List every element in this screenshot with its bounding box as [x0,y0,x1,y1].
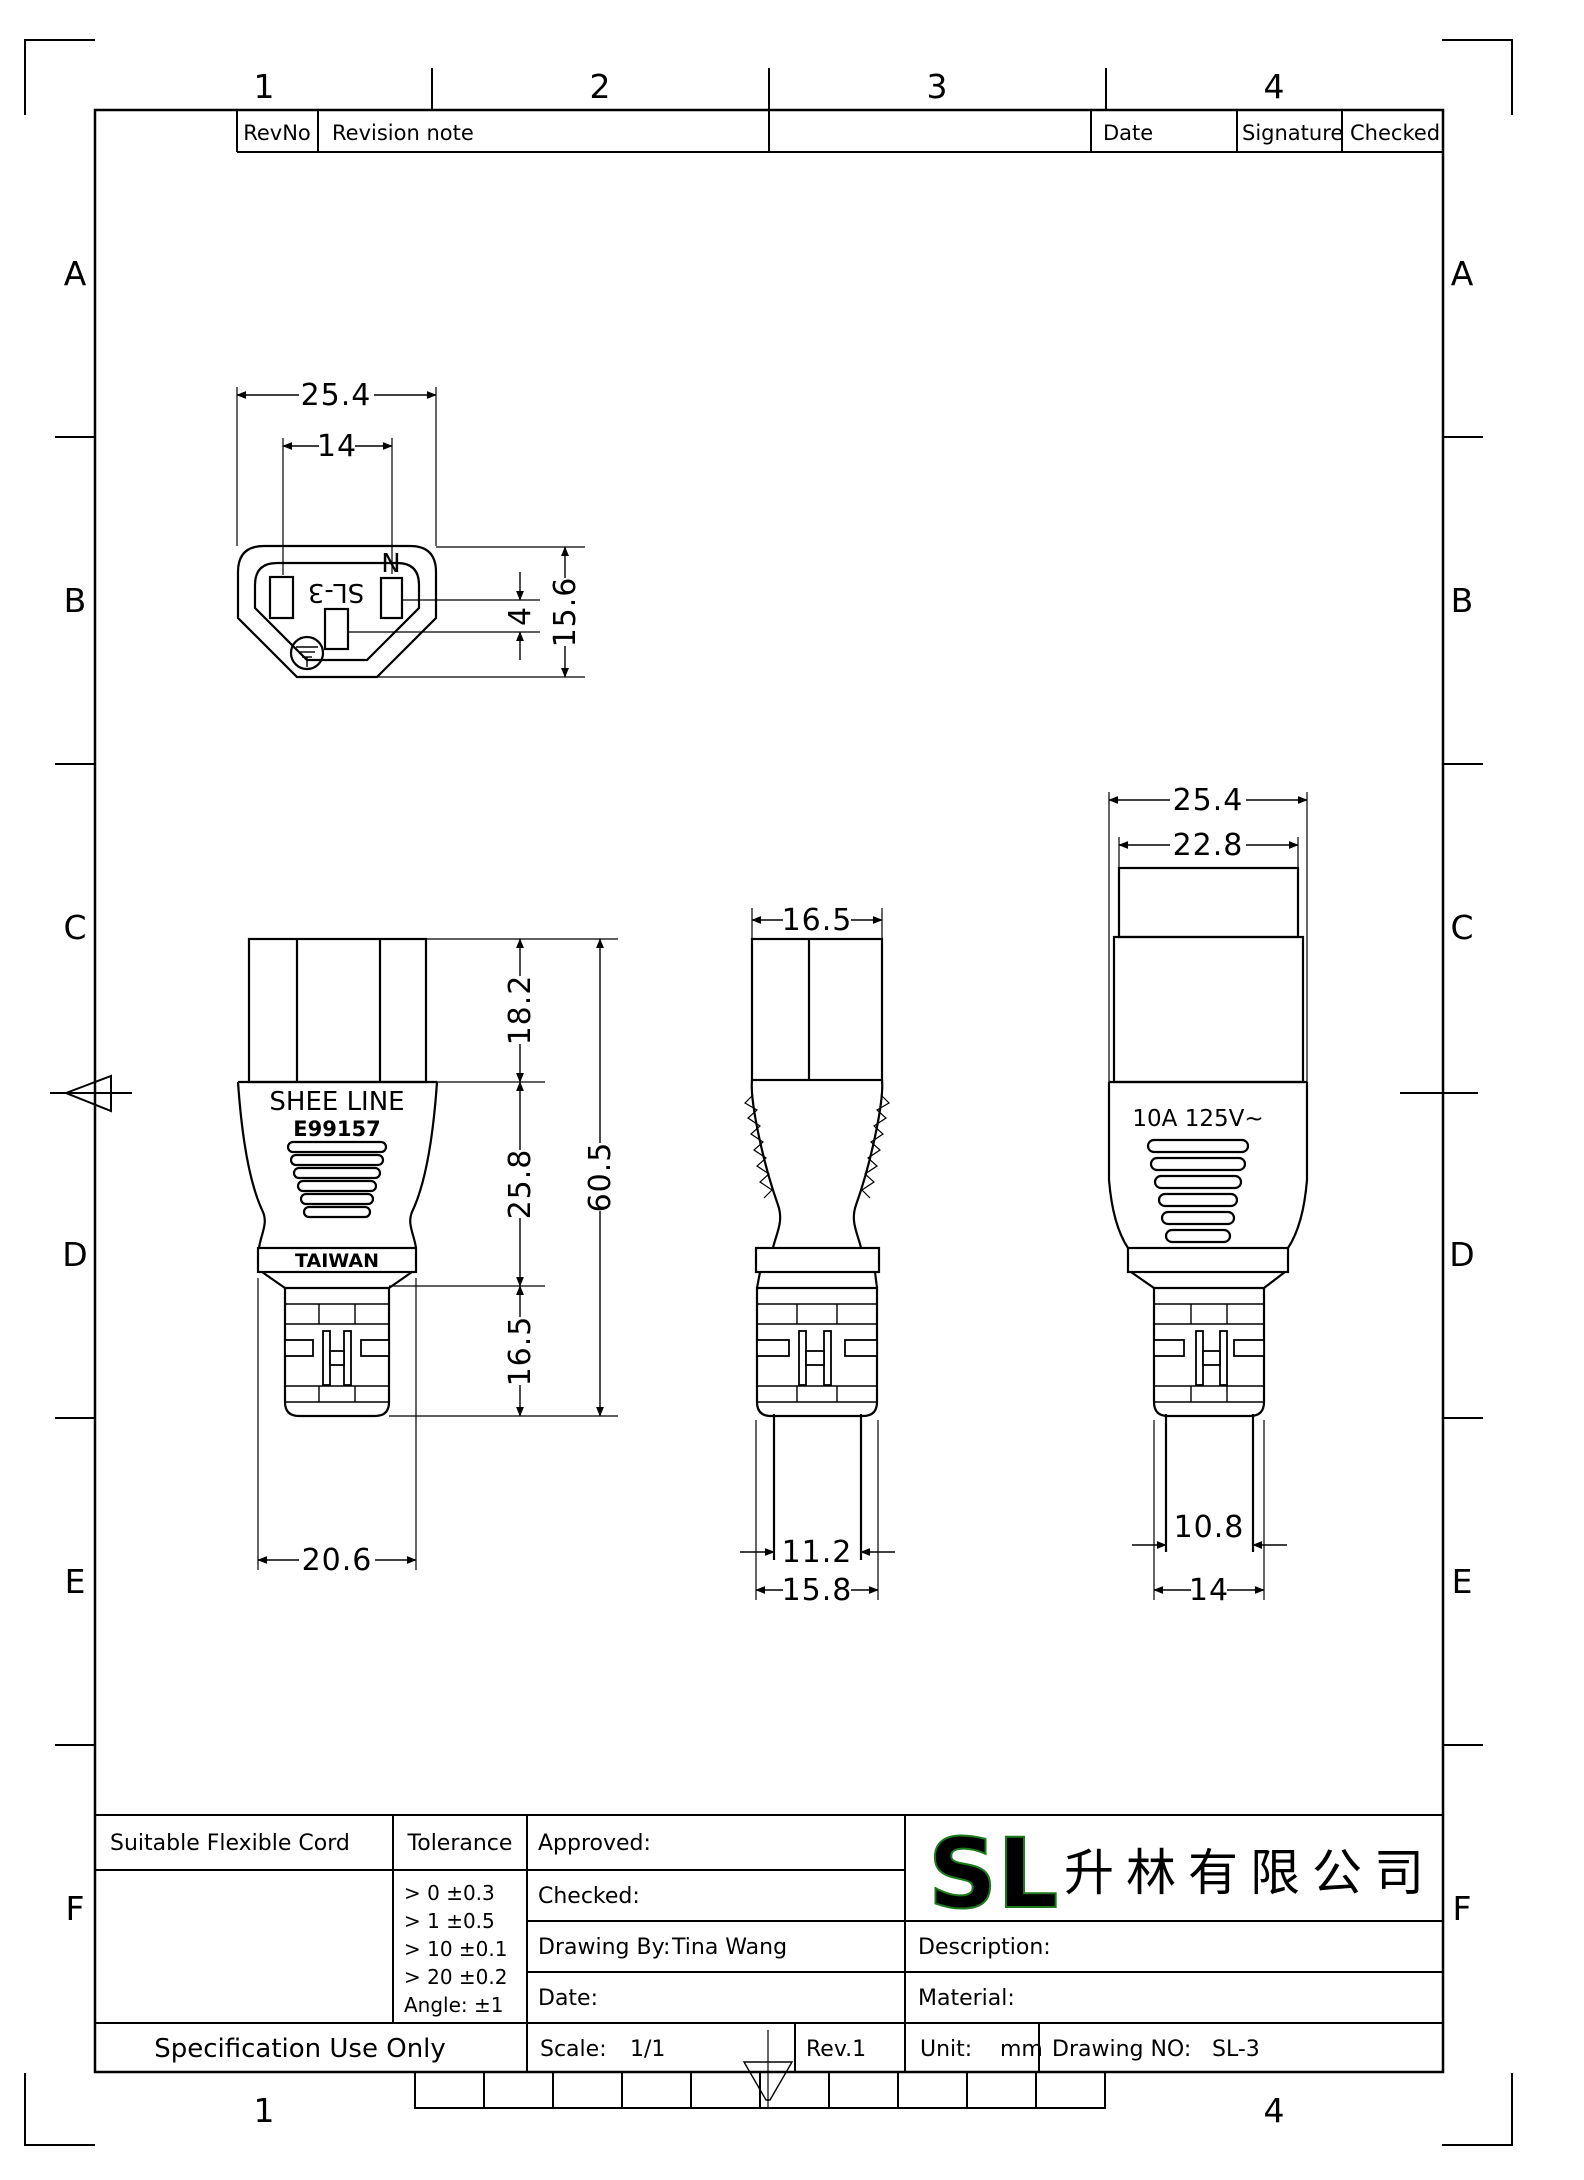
view-side: 16.5 11.2 [740,903,895,1608]
grid-col-label: 2 [590,67,611,106]
approved-label: Approved: [538,1831,651,1856]
trim-mark-bottom-left [25,2073,95,2145]
ground-screw-icon [291,637,323,669]
grid-col-label-bottom: 1 [254,2091,275,2130]
tolerance-row: > 10 ±0.1 [404,1937,508,1961]
dim-back-width: 25.4 [1173,783,1244,818]
pin-slot-left [270,577,293,618]
dim-face-width: 25.4 [301,378,372,413]
signature-header: Signature [1242,121,1343,145]
dim-front-bottom-width: 20.6 [302,1543,373,1578]
grid-row-label-right: F [1453,1889,1472,1928]
grid-row-label: F [66,1889,85,1928]
dim-front-total: 60.5 [583,1142,618,1213]
tolerance-label: Tolerance [407,1831,513,1856]
rating-marking: 10A 125V~ [1132,1106,1263,1132]
material-label: Material: [918,1986,1015,2011]
tolerance-row: > 20 ±0.2 [404,1965,508,1989]
title-block: Suitable Flexible Cord Tolerance Approve… [95,1815,1443,2108]
rev-value: Rev.1 [806,2037,866,2062]
date-header: Date [1103,121,1153,145]
dim-back-cable: 10.8 [1174,1510,1245,1545]
grid-row-label: B [64,581,87,620]
scale-value: 1/1 [630,2037,665,2062]
grid-col-label: 1 [254,67,275,106]
dim-pin-spacing: 14 [317,429,357,464]
pin-slot-neutral [381,578,402,618]
trim-mark-bottom-right [1442,2073,1512,2145]
tolerance-row: Angle: ±1 [404,1993,504,2017]
grid-row-label-right: C [1450,908,1473,947]
revno-header: RevNo [243,121,311,145]
brand-marking: SHEE LINE [269,1087,404,1117]
origin-marking: TAIWAN [295,1250,379,1272]
grid-row-label-right: D [1449,1235,1474,1274]
dim-side-strain-width: 15.8 [782,1573,853,1608]
dim-front-top: 18.2 [503,975,538,1046]
drawing-no-value: SL-3 [1212,2037,1260,2062]
grid-row-label-right: B [1451,581,1474,620]
company-name: 升林有限公司 [1064,1844,1436,1902]
grid-row-label: D [62,1235,87,1274]
revision-note-header: Revision note [332,121,474,145]
face-neutral-marking: N [381,549,400,579]
dim-back-neck: 22.8 [1173,828,1244,863]
scale-ruler [415,2072,1105,2108]
pin-slot-center [325,609,348,649]
dim-side-cable: 11.2 [782,1535,853,1570]
unit-value: mm [1000,2037,1043,2062]
ul-number-marking: E99157 [293,1117,380,1141]
projection-symbol-icon [744,2030,792,2108]
drawing-no-label: Drawing NO: [1052,2037,1191,2062]
dim-pin-offset: 4 [503,606,538,626]
revision-table: RevNo Revision note Date Signature Check… [237,110,1443,152]
grid-row-label-right: E [1452,1562,1473,1601]
spec-use-only: Specification Use Only [154,2034,446,2064]
company-logo: SL [928,1818,1058,1930]
grid-col-label-bottom: 4 [1264,2091,1285,2130]
dim-face-height: 15.6 [548,577,583,648]
grid-row-label: C [63,908,86,947]
date-label: Date: [538,1986,598,2011]
dim-front-mid: 25.8 [503,1149,538,1220]
trim-mark-top-right [1442,40,1512,115]
drawing-sheet: 1 2 3 4 1 4 A B C D E F A B C D E F RevN… [0,0,1584,2180]
view-back: 25.4 22.8 10A 125V~ [1109,783,1307,1608]
face-model-marking: SL-3 [308,577,364,607]
drawing-by-value: Tina Wang [671,1935,787,1960]
center-mark-left [50,1076,132,1111]
tolerance-row: > 0 ±0.3 [404,1881,495,1905]
dim-back-strain-width: 14 [1189,1573,1229,1608]
trim-mark-top-left [25,40,95,115]
unit-label: Unit: [920,2037,972,2062]
grid-col-label: 3 [927,67,948,106]
view-front: SHEE LINE E99157 TAIWAN [238,939,618,1578]
suitable-flexible-cord-label: Suitable Flexible Cord [110,1831,350,1856]
checked-header: Checked [1350,121,1440,145]
drawing-by-label: Drawing By: [538,1935,670,1960]
grid-row-label: E [65,1562,86,1601]
scale-label: Scale: [540,2037,607,2062]
dim-front-strain: 16.5 [503,1316,538,1387]
tolerance-row: > 1 ±0.5 [404,1909,495,1933]
grid-row-label-right: A [1451,254,1474,293]
sheet-frame: 1 2 3 4 1 4 A B C D E F A B C D E F [25,40,1512,2145]
cad-drawing: 1 2 3 4 1 4 A B C D E F A B C D E F RevN… [0,0,1584,2180]
checked-label: Checked: [538,1884,640,1909]
grid-col-label: 4 [1264,67,1285,106]
dim-side-width: 16.5 [782,903,853,938]
grid-row-label: A [64,254,87,293]
description-label: Description: [918,1935,1051,1960]
view-connector-face: 25.4 14 SL-3 N 4 [237,378,585,677]
